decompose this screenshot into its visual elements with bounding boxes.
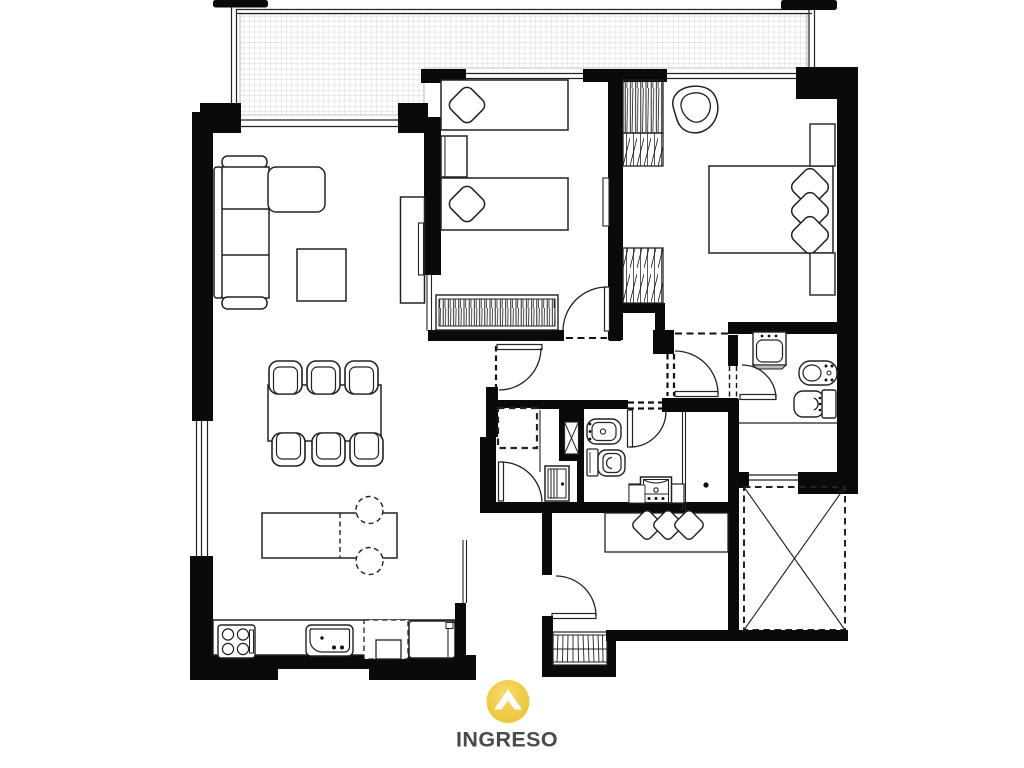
svg-text:INGRESO: INGRESO [456,728,558,752]
